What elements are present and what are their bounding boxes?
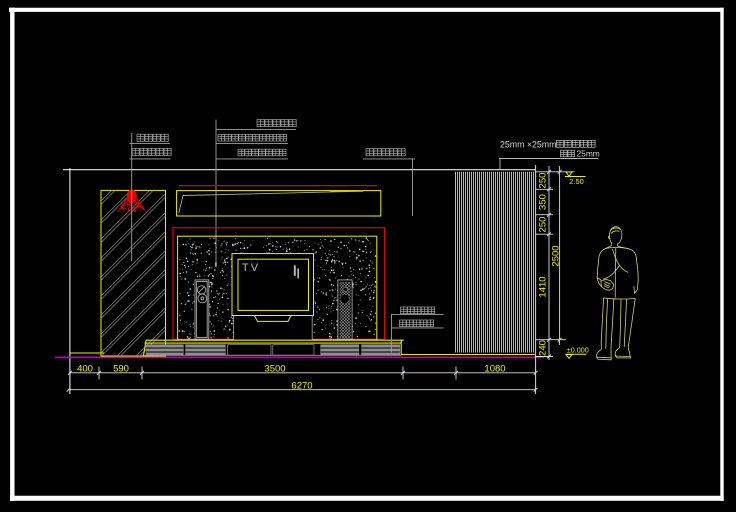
svg-text:350: 350	[538, 194, 549, 210]
svg-text:1410: 1410	[538, 276, 549, 297]
svg-text:25mm: 25mm	[577, 149, 600, 159]
svg-text:TV: TV	[242, 262, 260, 274]
svg-text:250: 250	[538, 217, 549, 233]
svg-text:2.50: 2.50	[569, 177, 583, 186]
svg-text:250: 250	[538, 173, 549, 189]
svg-text:1080: 1080	[484, 364, 505, 375]
svg-text:590: 590	[113, 364, 129, 375]
svg-text:2500: 2500	[550, 245, 561, 266]
svg-text:6270: 6270	[291, 380, 312, 391]
svg-text:±0.000: ±0.000	[567, 346, 589, 355]
svg-text:240: 240	[538, 340, 549, 356]
svg-text:25mm ×25mm: 25mm ×25mm	[500, 139, 556, 149]
svg-text:3500: 3500	[264, 364, 285, 375]
svg-text:400: 400	[77, 364, 93, 375]
